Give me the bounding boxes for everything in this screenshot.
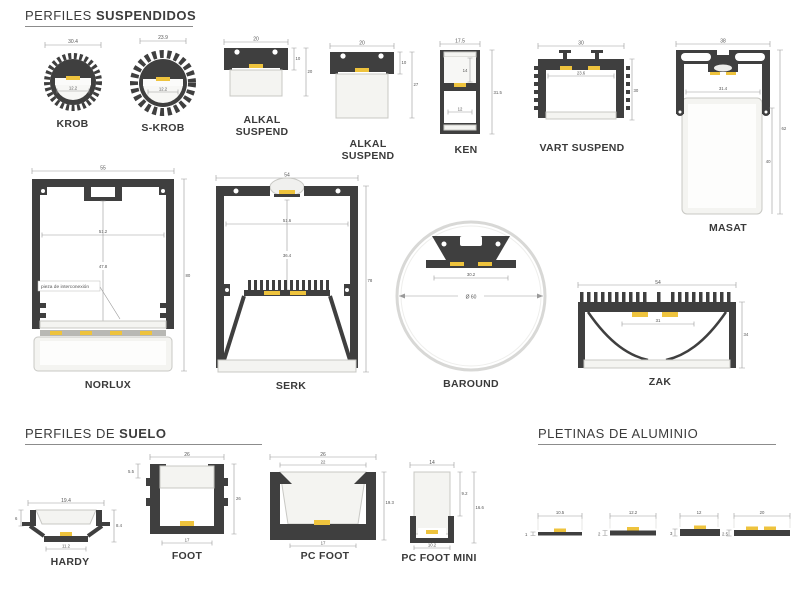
- pletina-4: 20 2.5: [722, 506, 796, 548]
- dim-recess: 6: [15, 516, 18, 521]
- pc-foot-cross-section: 26 22 19.3 17: [256, 452, 394, 548]
- dim-diffuser-height: 40: [766, 159, 771, 164]
- dim-bottom-width: 11.2: [62, 544, 71, 549]
- profile-alkal-suspend-1: 20 10 20 ALKAL SUSPEND: [210, 36, 314, 138]
- profile-label: VART SUSPEND: [524, 142, 640, 154]
- profile-label: SERK: [208, 380, 374, 392]
- profile-hardy: 19.4 6 8.4 11.2 HARDY: [14, 498, 126, 568]
- profile-label: FOOT: [128, 550, 246, 562]
- pc-foot-mini-cross-section: 14 9.2 16.6 10.2: [390, 460, 488, 550]
- dim-bottom-width: 17: [321, 541, 326, 546]
- profile-label: PC FOOT: [256, 550, 394, 562]
- dim-thickness: 1: [525, 532, 528, 537]
- dim-inner-width: 23.6: [577, 71, 586, 76]
- section-title-emphasis: SUSPENDIDOS: [96, 8, 196, 23]
- dim-inner: 12.2: [69, 86, 78, 91]
- dim-width: 14: [429, 460, 435, 466]
- dim-height: 31.5: [494, 90, 503, 95]
- dim-inner-width: 12: [458, 107, 463, 112]
- alkal-suspend-cross-section: 20 10 27: [316, 40, 420, 136]
- section-title-prefix: PLETINAS DE: [538, 426, 628, 441]
- dim-thickness: 2: [598, 532, 601, 537]
- profile-label: ALKAL SUSPEND: [210, 114, 314, 138]
- profile-ken: 17.5 14 12 31.5 KEN: [424, 38, 508, 156]
- profile-masat: 38 31.4 62 40 MASAT: [668, 38, 788, 234]
- profile-label: NORLUX: [22, 379, 194, 391]
- dim-width: 19.4: [61, 498, 71, 504]
- dim-body-height: 10: [402, 60, 407, 65]
- dim-width: 54: [655, 280, 661, 286]
- dim-height: 26: [236, 496, 241, 501]
- dim-height: 34: [744, 332, 749, 337]
- serk-cross-section: 54 51.6 36.4 78: [208, 172, 374, 378]
- profile-foot: 26 5.5 26 17 FOOT: [128, 452, 246, 562]
- skrob-cross-section: 23.9 12.2: [118, 34, 208, 120]
- dim-height: 8.4: [116, 523, 123, 528]
- section-title-emphasis: ALUMINIO: [631, 426, 698, 441]
- dim-total-height: 62: [782, 126, 787, 131]
- dim-body-height: 10: [296, 56, 301, 61]
- dim-total-height: 20: [308, 69, 313, 74]
- dim-inner: 12.2: [159, 87, 168, 92]
- profile-label: ZAK: [570, 376, 750, 388]
- dim-width: 12: [697, 510, 702, 515]
- pletina-cross-section: 12 3: [670, 506, 726, 548]
- dim-height: 16.6: [476, 505, 485, 510]
- section-title-suspended: PERFILES SUSPENDIDOS: [25, 8, 193, 27]
- profile-label: HARDY: [14, 556, 126, 568]
- pletina-1: 10.5 1: [524, 506, 592, 548]
- section-title-prefix: PERFILES DE: [25, 426, 115, 441]
- dim-thickness: 2.5: [722, 532, 729, 537]
- dim-width: 12.2: [629, 510, 638, 515]
- vart-suspend-cross-section: 30 23.6 30: [524, 40, 640, 140]
- dim-height: 80: [186, 273, 191, 278]
- dim-inner-height: 9.2: [462, 491, 469, 496]
- dim-inner-width: 30.2: [467, 272, 476, 277]
- dim-bottom-width: 10.2: [428, 543, 437, 548]
- dim-width: 20: [359, 41, 365, 47]
- profile-pc-foot: 26 22 19.3 17 PC FOOT: [256, 452, 394, 562]
- dim-upper-height: 14: [463, 68, 468, 73]
- dim-lip-height: 5.5: [128, 469, 135, 474]
- dim-width: 20: [253, 37, 259, 43]
- profile-baround: 30.2 Ø 60 BAROUND: [392, 212, 550, 390]
- dim-thickness: 3: [670, 531, 673, 536]
- section-title-floor: PERFILES DE SUELO: [25, 426, 262, 445]
- dim-inner-height: 36.4: [283, 253, 292, 258]
- profile-label: S-KROB: [118, 122, 208, 134]
- dim-height: 30: [634, 88, 639, 93]
- section-title-prefix: PERFILES: [25, 8, 92, 23]
- dim-width: 17.5: [455, 39, 465, 45]
- dim-width: 38: [720, 39, 726, 45]
- pletina-2: 12.2 2: [598, 506, 664, 548]
- catalog-page: PERFILES SUSPENDIDOS PERFILES DE SUELO P…: [0, 0, 800, 600]
- dim-bottom-width: 17: [185, 538, 190, 543]
- dim-width: 55: [100, 166, 106, 172]
- ken-cross-section: 17.5 14 12 31.5: [424, 38, 508, 142]
- dim-total-height: 27: [414, 82, 419, 87]
- profile-label: MASAT: [668, 222, 788, 234]
- pletina-3: 12 3: [670, 506, 726, 548]
- profile-label: BAROUND: [392, 378, 550, 390]
- pletina-cross-section: 12.2 2: [598, 506, 664, 548]
- dim-width: 20: [760, 510, 765, 515]
- profile-krob: 30.4 12.2 KROB: [25, 38, 120, 130]
- foot-cross-section: 26 5.5 26 17: [128, 452, 246, 548]
- dim-inner-width: 31.4: [719, 86, 728, 91]
- dim-width: 23.9: [158, 35, 168, 41]
- section-title-emphasis: SUELO: [119, 426, 166, 441]
- dim-inner-width: 31: [656, 318, 661, 323]
- profile-label: KEN: [424, 144, 508, 156]
- pletina-cross-section: 20 2.5: [722, 506, 796, 548]
- masat-cross-section: 38 31.4 62 40: [668, 38, 788, 220]
- profile-skrob: 23.9 12.2 S-KROB: [118, 34, 208, 134]
- norlux-cross-section: 55 51.2 47.8 pieza de interconexión: [22, 165, 194, 377]
- krob-cross-section: 30.4 12.2: [25, 38, 120, 116]
- dim-width: 30: [578, 41, 584, 47]
- profile-label: ALKAL SUSPEND: [316, 138, 420, 162]
- interconnect-note: pieza de interconexión: [41, 284, 89, 290]
- profile-norlux: 55 51.2 47.8 pieza de interconexión: [22, 165, 194, 391]
- dim-inner-width: 22: [321, 460, 326, 465]
- profile-label: PC FOOT MINI: [390, 552, 488, 564]
- profile-label: KROB: [25, 118, 120, 130]
- dim-height: 78: [368, 278, 373, 283]
- dim-width: 26: [184, 452, 190, 458]
- dim-width: 30.4: [68, 39, 78, 45]
- alkal-suspend-cross-section: 20 10 20: [210, 36, 314, 112]
- profile-zak: 54 31 34 ZAK: [570, 280, 750, 388]
- profile-vart-suspend: 30 23.6 30 VART SUSPEND: [524, 40, 640, 154]
- dim-diameter: Ø 60: [466, 295, 477, 301]
- dim-inner-height: 47.8: [99, 264, 108, 269]
- hardy-cross-section: 19.4 6 8.4 11.2: [14, 498, 126, 554]
- profile-serk: 54 51.6 36.4 78 SERK: [208, 172, 374, 392]
- section-title-pletinas: PLETINAS DE ALUMINIO: [538, 426, 776, 445]
- profile-alkal-suspend-2: 20 10 27 ALKAL SUSPEND: [316, 40, 420, 162]
- zak-cross-section: 54 31 34: [570, 280, 750, 374]
- dim-outer-width: 26: [320, 452, 326, 458]
- pletina-cross-section: 10.5 1: [524, 506, 592, 548]
- baround-cross-section: 30.2 Ø 60: [392, 212, 550, 376]
- profile-pc-foot-mini: 14 9.2 16.6 10.2 PC FOOT MINI: [390, 460, 488, 564]
- dim-width: 10.5: [556, 510, 565, 515]
